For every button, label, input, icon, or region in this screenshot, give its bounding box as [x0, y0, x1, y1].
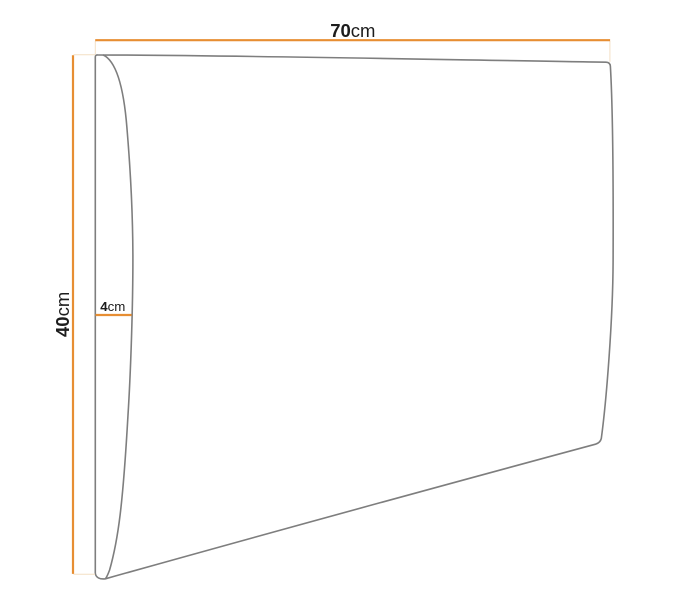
svg-text:70cm: 70cm [330, 20, 375, 41]
svg-text:40cm: 40cm [52, 292, 73, 337]
svg-text:4cm: 4cm [100, 299, 125, 314]
